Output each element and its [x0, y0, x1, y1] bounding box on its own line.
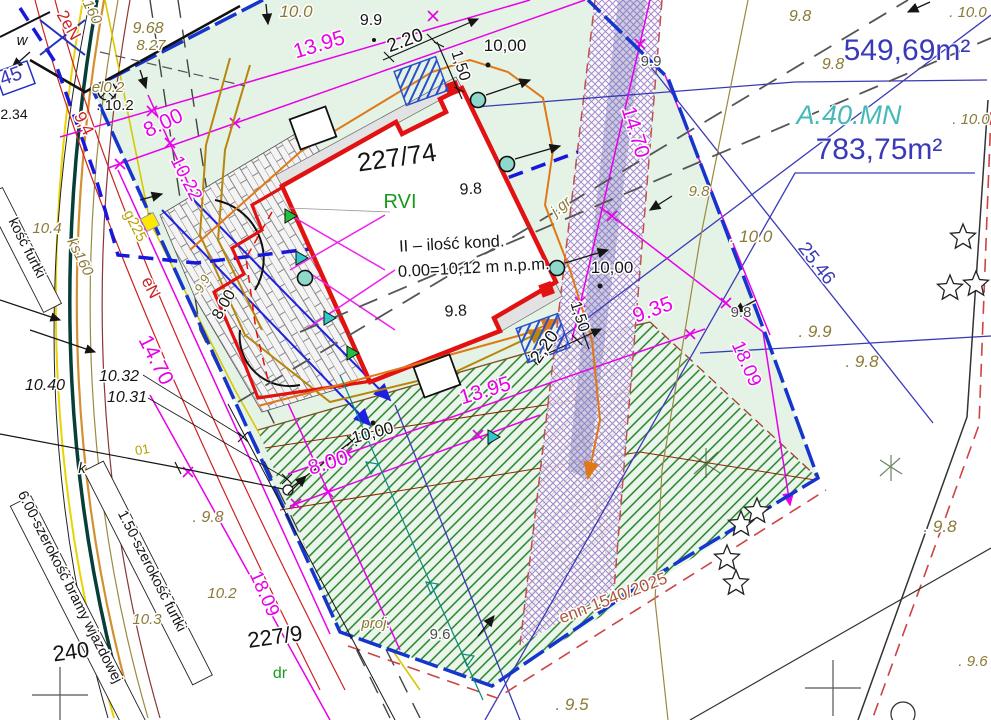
spot-9-5-bottom: . 9.5 [555, 695, 589, 714]
cable-01: 01 [134, 441, 151, 458]
spot-10-2-topleft: . 10.2 [96, 97, 134, 114]
spot-9-8-belowstrip: 9.8 [731, 304, 752, 321]
spot-10-4: 10.4 [32, 220, 61, 237]
spot-10-0-r1: . 10.0 [949, 4, 987, 21]
spot-9-8-b: 9.8 [822, 56, 844, 73]
spot-9-8-botright: . 9.8 [923, 517, 957, 536]
spot-9-8-bldg2: 9.8 [444, 302, 467, 320]
spot-10-32: 10.32 [99, 368, 139, 385]
spot-8-27: 8.27 [136, 37, 166, 54]
area-part: 549,69m² [844, 34, 971, 67]
spot-9-6-botright: . 9.6 [958, 653, 988, 670]
spot-9-8-strip: 9.8 [689, 183, 711, 200]
spot-9-9-topright: 9.9 [641, 53, 662, 70]
zone-code: A.40.MN [794, 100, 902, 130]
land-class: RVI [384, 191, 417, 213]
spot-9-68: 9.68 [132, 20, 163, 37]
spot-10-0-r2: . 10.0 [952, 111, 990, 128]
spot-9-8-right: . 9.8 [845, 352, 879, 371]
spot-10-31: 10.31 [107, 389, 147, 406]
symbol-w: w [17, 32, 29, 49]
area-total: 783,75m² [816, 133, 943, 166]
spot-2-34: 2.34 [0, 106, 27, 122]
plot-number-adjacent: 240 [51, 637, 91, 667]
dim-10-00-top: 10,00 [484, 36, 527, 55]
spot-10-0-mid: . 10.0 [730, 227, 773, 246]
spot-9-8-bldg1: 9.8 [459, 180, 482, 198]
site-plan: 227/74RVIII – ilość kond.0.00=10,12 m n.… [0, 0, 991, 720]
spot-9-8-leftbot: . 9.8 [192, 509, 223, 526]
spot-10-0-top: 10.0 [279, 2, 313, 21]
spot-9-8-a: 9.8 [789, 8, 811, 25]
dim-10-00-mid: 10,00 [591, 258, 634, 277]
road-type: dr [273, 665, 288, 682]
spot-10-2-road: 10.2 [207, 585, 237, 602]
spot-10-3-road: 10.3 [132, 611, 162, 628]
spot-9-6-bottom: 9.6 [430, 626, 451, 643]
note-proj: proj. [360, 615, 390, 632]
spot-10-40: 10.40 [25, 377, 65, 394]
spot-el0-2: el0.2 [92, 79, 125, 96]
spot-9-9-top: 9.9 [360, 12, 382, 29]
spot-9-9-right: . 9.9 [798, 322, 832, 341]
site-plan-drawing: 227/74RVIII – ilość kond.0.00=10,12 m n.… [0, 0, 991, 720]
